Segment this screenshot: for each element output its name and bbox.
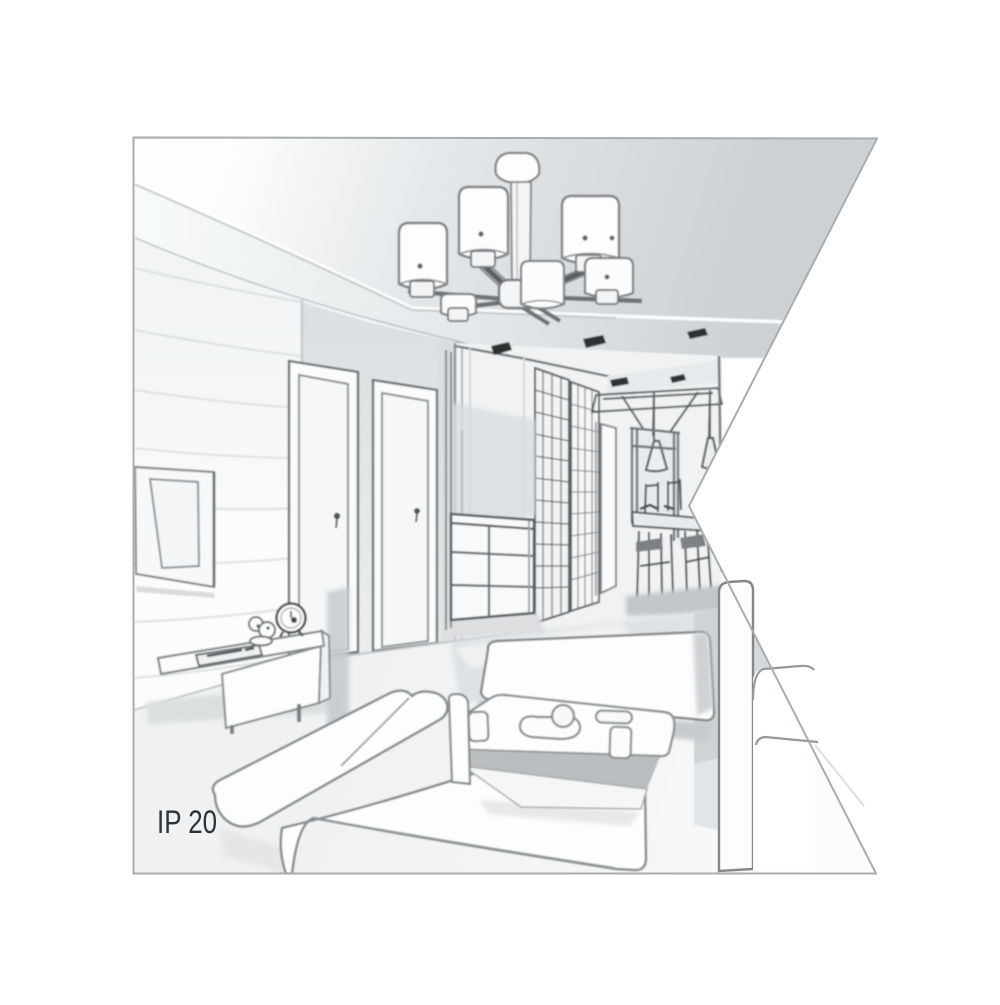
svg-text:IP 20: IP 20 [157,804,217,840]
